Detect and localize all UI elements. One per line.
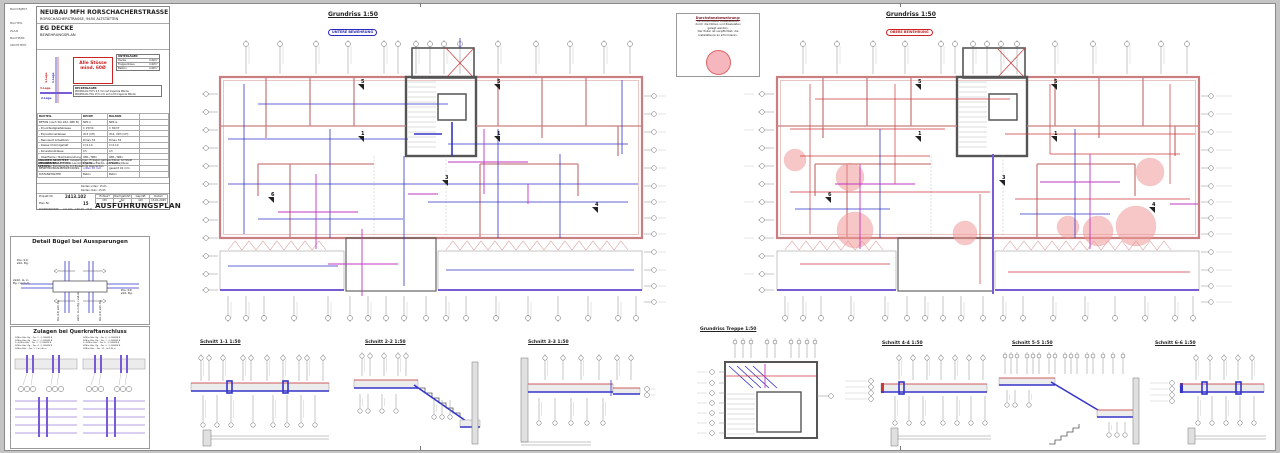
unterlagen-row-val: 4 Ø/m² (149, 59, 158, 62)
zulagen-notes-right: 3Ø8/m Bde. Bg. · Pos. 6 · Q-188/Ø8 B3Ø8/… (83, 337, 147, 350)
zulagen-drawing (11, 353, 149, 447)
plan-kind: BEWEHRUNGSPLAN (40, 33, 76, 37)
svg-text:5: 5 (361, 79, 365, 85)
unterlagen-row-val: 4 Ø/m² (149, 67, 158, 70)
stoss-note-line2: mind. 60Ø (74, 66, 112, 71)
deckenlager-note: DECKENLAGER: PROMOLOG TOTL 0.5 mm auf tr… (73, 85, 162, 97)
unterlagen-row-key: Treppenhaus (118, 63, 135, 66)
fold-mark (900, 446, 901, 450)
lage-3-label: 3.Lage (40, 87, 51, 90)
svg-text:1: 1 (1054, 131, 1058, 137)
deckenlager-line2: PROMOLOG TWL 15.5 mm auf nicht tragende … (75, 93, 160, 96)
left-floor-plan: 5 5 1 1 3 6 4 (198, 34, 668, 332)
punching-zone-symbol (706, 50, 731, 75)
section-label-5-5: Schnitt 5-5 1:50 (1012, 341, 1053, 346)
lage-2-label: 2.Lage (41, 97, 52, 100)
kanten-line1: Kanten unten: 15.01 (81, 185, 107, 188)
section-label-4-4: Schnitt 4-4 1:50 (882, 341, 923, 346)
drawing-sheet-page: { "colors":{"red":"#cc3838","blue":"#343… (0, 0, 1280, 453)
fold-mark (420, 446, 421, 450)
unterlagen-row-val: 4 Ø/m² (149, 63, 158, 66)
project-no: 2413.102 (65, 194, 86, 199)
right-plan-title: Grundriss 1:50 (886, 11, 936, 18)
unterlagen-table: UNTERLAGEN Decke4 Ø/m² Treppenhaus4 Ø/m²… (116, 54, 160, 71)
svg-text:1: 1 (497, 131, 501, 137)
section-6-6-drawing (1148, 350, 1270, 448)
svg-text:3: 3 (1002, 175, 1006, 181)
side-label-architekt: ARCHITEKT (10, 44, 27, 47)
koord-line: A-S.011 · 140.05 · 44.B (63, 208, 92, 211)
project-name: NEUBAU MFH RORSCHACHERSTRASSE (40, 9, 168, 16)
right-floor-plan: 5 5 1 1 3 6 4 (740, 34, 1238, 332)
angaben-key: SPEZIELL: (38, 165, 52, 168)
svg-text:6: 6 (828, 192, 832, 198)
detail-buegel-drawing (11, 249, 149, 323)
section-1-1-drawing (183, 350, 333, 448)
mat-cell: DISTANZHALTER (38, 171, 82, 177)
project-no-label: Projekt Nr. (39, 195, 53, 198)
zulagen-title: Zulagen bei Querkraftanschluss (11, 329, 149, 335)
svg-text:4: 4 (1152, 202, 1156, 208)
pos12-label: Pos (12)ø10, Bg. (121, 289, 133, 296)
svg-text:1: 1 (918, 131, 922, 137)
section-3-3-drawing (495, 350, 655, 448)
unterlagen-row-key: Decke (118, 59, 126, 62)
section-label-treppe: Grundriss Treppe 1:50 (700, 327, 756, 332)
plan-no-label: Plan Nr. (39, 202, 50, 205)
ll-label: 2ø10, LL inBg. rundum (13, 279, 29, 286)
ll-rot-label: 2ø10, LL in Bg. rundum (77, 292, 80, 321)
title-block: NEUBAU MFH RORSCHACHERSTRASSE RORSCHACHE… (36, 6, 170, 210)
pos11-label: Pos (11)ø10, Bg. (17, 259, 29, 266)
lage-4-label: 4.Lage (45, 72, 48, 83)
side-label-bauteil: BAUTEIL (10, 22, 23, 25)
pos13-rot-label: Pos (13) ø10, Bg. (57, 300, 60, 321)
section-label-2-2: Schnitt 2-2 1:50 (365, 340, 406, 345)
svg-text:5: 5 (918, 79, 922, 85)
section-label-3-3: Schnitt 3-3 1:50 (528, 340, 569, 345)
left-plan-title: Grundriss 1:50 (328, 11, 378, 18)
zulagen-box: Zulagen bei Querkraftanschluss 3Ø8/m Bde… (10, 326, 150, 449)
section-5-5-drawing (993, 350, 1143, 448)
kanten-line2: Kanten oben: 15.05 (81, 189, 106, 192)
detail-buegel-title: Detail Bügel bei Aussparungen (11, 239, 149, 245)
pos13b-rot-label: Pos (13) ø10, Bg. (99, 300, 102, 321)
stoss-note: Alle Stösse mind. 60Ø (73, 57, 113, 84)
fold-mark (900, 3, 901, 7)
treppe-plan-drawing (695, 336, 835, 450)
section-label-6-6: Schnitt 6-6 1:50 (1155, 341, 1196, 346)
svg-text:1: 1 (361, 131, 365, 137)
koord-label: KOORDINATION: (39, 208, 59, 211)
section-4-4-drawing (843, 350, 993, 448)
svg-text:5: 5 (1054, 79, 1058, 85)
side-label-plan: PLAN (10, 30, 18, 33)
lage-1-label: 1.Lage (52, 72, 55, 83)
main-plan-title: AUSFÜHRUNGSPLAN (95, 201, 168, 210)
fold-mark (420, 3, 421, 7)
project-address: RORSCHACHERSTRASSE, 9450 ALTSTÄTTEN (40, 17, 118, 21)
building-part: EG DECKE (40, 25, 73, 32)
side-label-bauobjekt: BAUOBJEKT (10, 8, 27, 11)
angaben-block: ANGABEN ARCHITEKT: Aussparungen, Einlage… (38, 159, 167, 168)
section-label-1-1: Schnitt 1-1 1:50 (200, 340, 241, 345)
mat-cell: Beton (82, 171, 108, 177)
svg-text:4: 4 (595, 202, 599, 208)
mat-cell: Beton (108, 171, 140, 177)
section-2-2-drawing (348, 350, 483, 448)
zulagen-notes-left: 3Ø8/m Bde. Bg. · Pos. 1 · Q-188/Ø8 B3Ø8/… (15, 337, 79, 350)
svg-text:3: 3 (445, 175, 449, 181)
detail-buegel-box: Detail Bügel bei Aussparungen Pos (11)ø1… (10, 236, 150, 325)
unterlagen-row-key: Balkon (118, 67, 127, 70)
plan-no: 15 (83, 201, 89, 206)
svg-text:6: 6 (271, 192, 275, 198)
svg-text:5: 5 (497, 79, 501, 85)
angaben-val: Durchbrüche mit Bauleitung absprechen (53, 165, 104, 168)
side-label-bauherr: BAUHERR (10, 37, 25, 40)
